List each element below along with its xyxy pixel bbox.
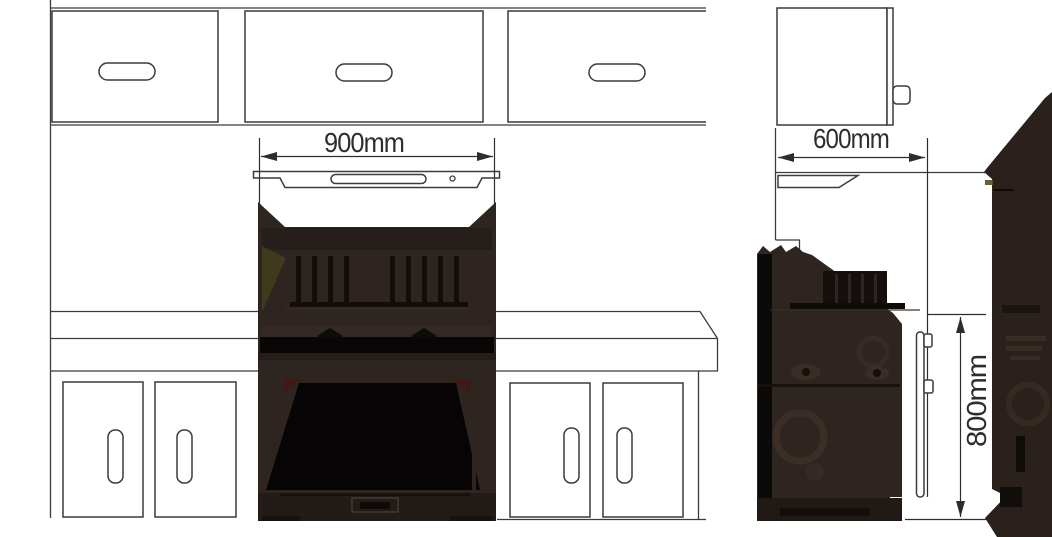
dimension-arrow-down-icon xyxy=(956,501,965,517)
photo-speck xyxy=(985,180,993,185)
upper-cabinet-door-edge xyxy=(887,8,893,125)
dimension-arrow-right-icon xyxy=(909,153,925,162)
oven-door-handle xyxy=(917,332,925,497)
grate-rail xyxy=(285,307,470,310)
drawer-handle-3 xyxy=(589,64,645,81)
pan-support-slat xyxy=(874,274,877,305)
foot-left xyxy=(262,516,300,521)
drawer-handle-1 xyxy=(99,63,155,80)
cabinet-door xyxy=(63,382,143,517)
knob-center xyxy=(802,368,810,376)
cooker-side-silhouette xyxy=(757,245,933,521)
body-seam xyxy=(758,384,900,387)
photo-detail xyxy=(1016,436,1025,472)
dimension-arrow-left-icon xyxy=(778,153,794,162)
upper-cabinet-side xyxy=(777,8,910,125)
depth-dimension-label: 600mm xyxy=(813,123,889,154)
side-pan-support xyxy=(823,271,887,308)
dimension-arrow-left-icon xyxy=(261,152,277,161)
worktop-left xyxy=(50,312,259,372)
dimension-arrow-up-icon xyxy=(956,317,965,333)
door-handle xyxy=(177,430,192,483)
oven-door-glass xyxy=(266,383,480,490)
pan-support-slat xyxy=(861,274,864,305)
side-view: 600mm xyxy=(757,8,1052,537)
base-cabinet-right xyxy=(497,371,706,520)
knob-center xyxy=(873,369,881,377)
cabinet-door xyxy=(603,383,683,517)
front-view: 900mm xyxy=(50,0,718,521)
cooker-front-silhouette xyxy=(258,202,496,521)
upstand-band xyxy=(262,228,492,250)
control-panel xyxy=(262,326,492,337)
worktop-top-line xyxy=(495,312,718,339)
worktop-right xyxy=(495,312,718,372)
door-handle xyxy=(108,430,123,483)
photo-stripe xyxy=(1006,336,1046,341)
photo-detail xyxy=(1000,487,1022,507)
handle-bracket xyxy=(924,380,933,393)
backsplash-trim-profile xyxy=(778,176,858,188)
cabinet-door xyxy=(155,382,236,517)
cropped-photo-silhouette xyxy=(984,92,1052,537)
plinth-handle-recess xyxy=(360,502,390,509)
hob-trim xyxy=(254,172,500,188)
photo-detail xyxy=(1002,305,1040,313)
photo-stripe xyxy=(1010,356,1040,360)
base-cabinet-left xyxy=(63,382,236,517)
plinth-seam xyxy=(280,493,470,496)
foot-right xyxy=(450,516,492,521)
hob-edge-side xyxy=(770,309,920,311)
diagram-canvas: 900mm 600mm xyxy=(0,0,1052,537)
height-dimension-label: 800mm xyxy=(961,355,992,447)
door-handle xyxy=(617,428,632,483)
door-top-strip xyxy=(258,353,496,360)
hob-shadow-band xyxy=(260,337,494,353)
dimension-arrow-right-icon xyxy=(477,152,493,161)
texture-dot xyxy=(806,463,824,481)
side-plinth-shadow xyxy=(780,508,870,516)
drawer-handle-2 xyxy=(336,64,392,81)
cooker-dimension-diagram: 900mm 600mm xyxy=(0,0,1052,537)
upper-cabinets-front xyxy=(50,8,706,125)
pan-support-slat xyxy=(835,274,838,305)
upper-cabinet-knob xyxy=(893,86,910,104)
grate-rail-side xyxy=(790,303,905,309)
front-width-dimension: 900mm xyxy=(260,127,495,210)
glass-edge-slit xyxy=(472,441,476,490)
photo-stripe xyxy=(1006,346,1042,351)
door-handle xyxy=(564,428,579,483)
handle-bracket xyxy=(924,334,932,347)
hob-trim-slot xyxy=(331,175,426,184)
pan-support-slat xyxy=(848,274,851,305)
photo-detail-line xyxy=(994,189,1014,191)
upper-cabinet-box xyxy=(777,8,887,125)
side-depth-dimension: 600mm xyxy=(778,123,925,162)
width-dimension-label: 900mm xyxy=(324,127,404,158)
